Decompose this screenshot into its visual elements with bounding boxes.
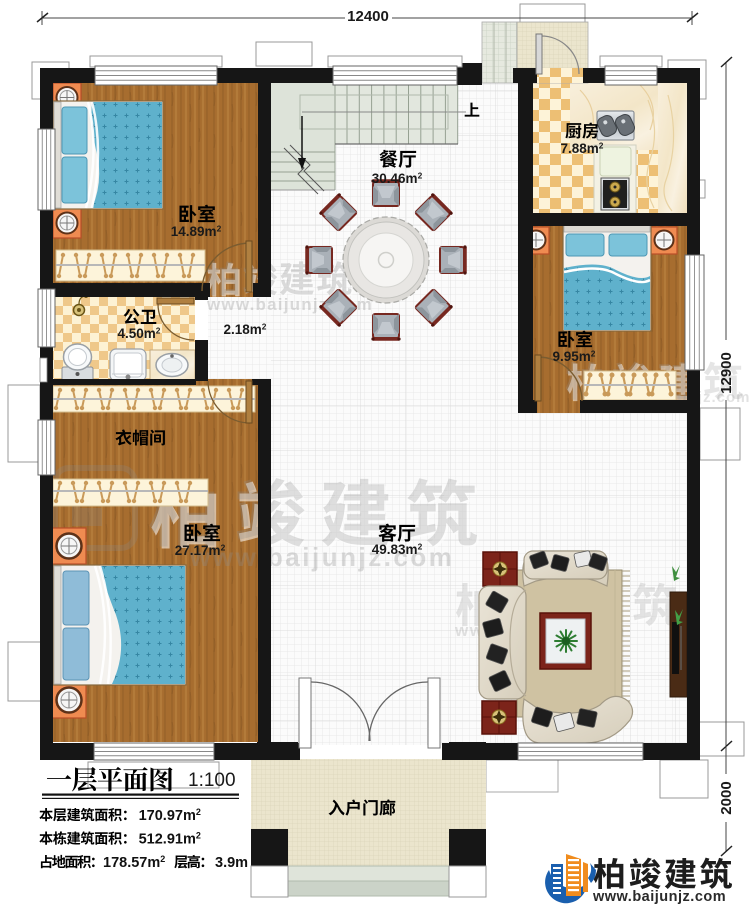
svg-text:3.9m: 3.9m <box>215 855 248 871</box>
svg-text:4.50m2: 4.50m2 <box>118 325 161 341</box>
svg-text:7.88m2: 7.88m2 <box>561 140 604 156</box>
svg-text:www.baijunjz.com: www.baijunjz.com <box>592 889 726 905</box>
svg-text:27.17m2: 27.17m2 <box>175 542 226 558</box>
svg-text:178.57m2: 178.57m2 <box>103 854 165 871</box>
svg-text:12400: 12400 <box>347 8 389 25</box>
svg-text:14.89m2: 14.89m2 <box>171 223 222 239</box>
svg-text:12900: 12900 <box>718 352 735 394</box>
svg-text:512.91m2: 512.91m2 <box>139 831 201 848</box>
svg-text:170.97m2: 170.97m2 <box>139 807 201 824</box>
svg-text:49.83m2: 49.83m2 <box>372 541 423 557</box>
svg-text:2.18m2: 2.18m2 <box>224 321 267 337</box>
svg-text:9.95m2: 9.95m2 <box>553 348 596 364</box>
svg-text:2000: 2000 <box>718 781 735 814</box>
svg-text:1:100: 1:100 <box>188 770 236 791</box>
svg-text:30.46m2: 30.46m2 <box>372 170 423 186</box>
